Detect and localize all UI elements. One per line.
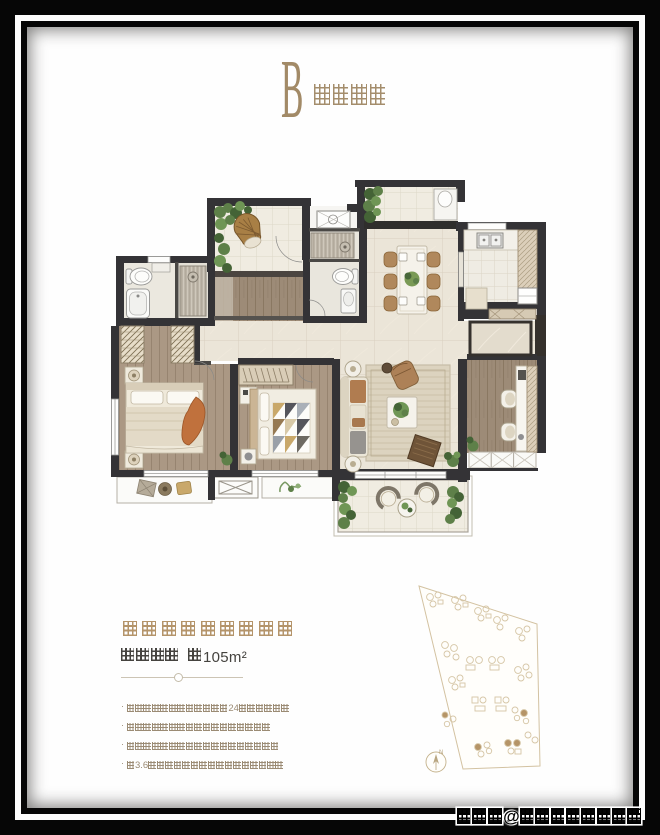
svg-text:N: N	[439, 750, 443, 756]
